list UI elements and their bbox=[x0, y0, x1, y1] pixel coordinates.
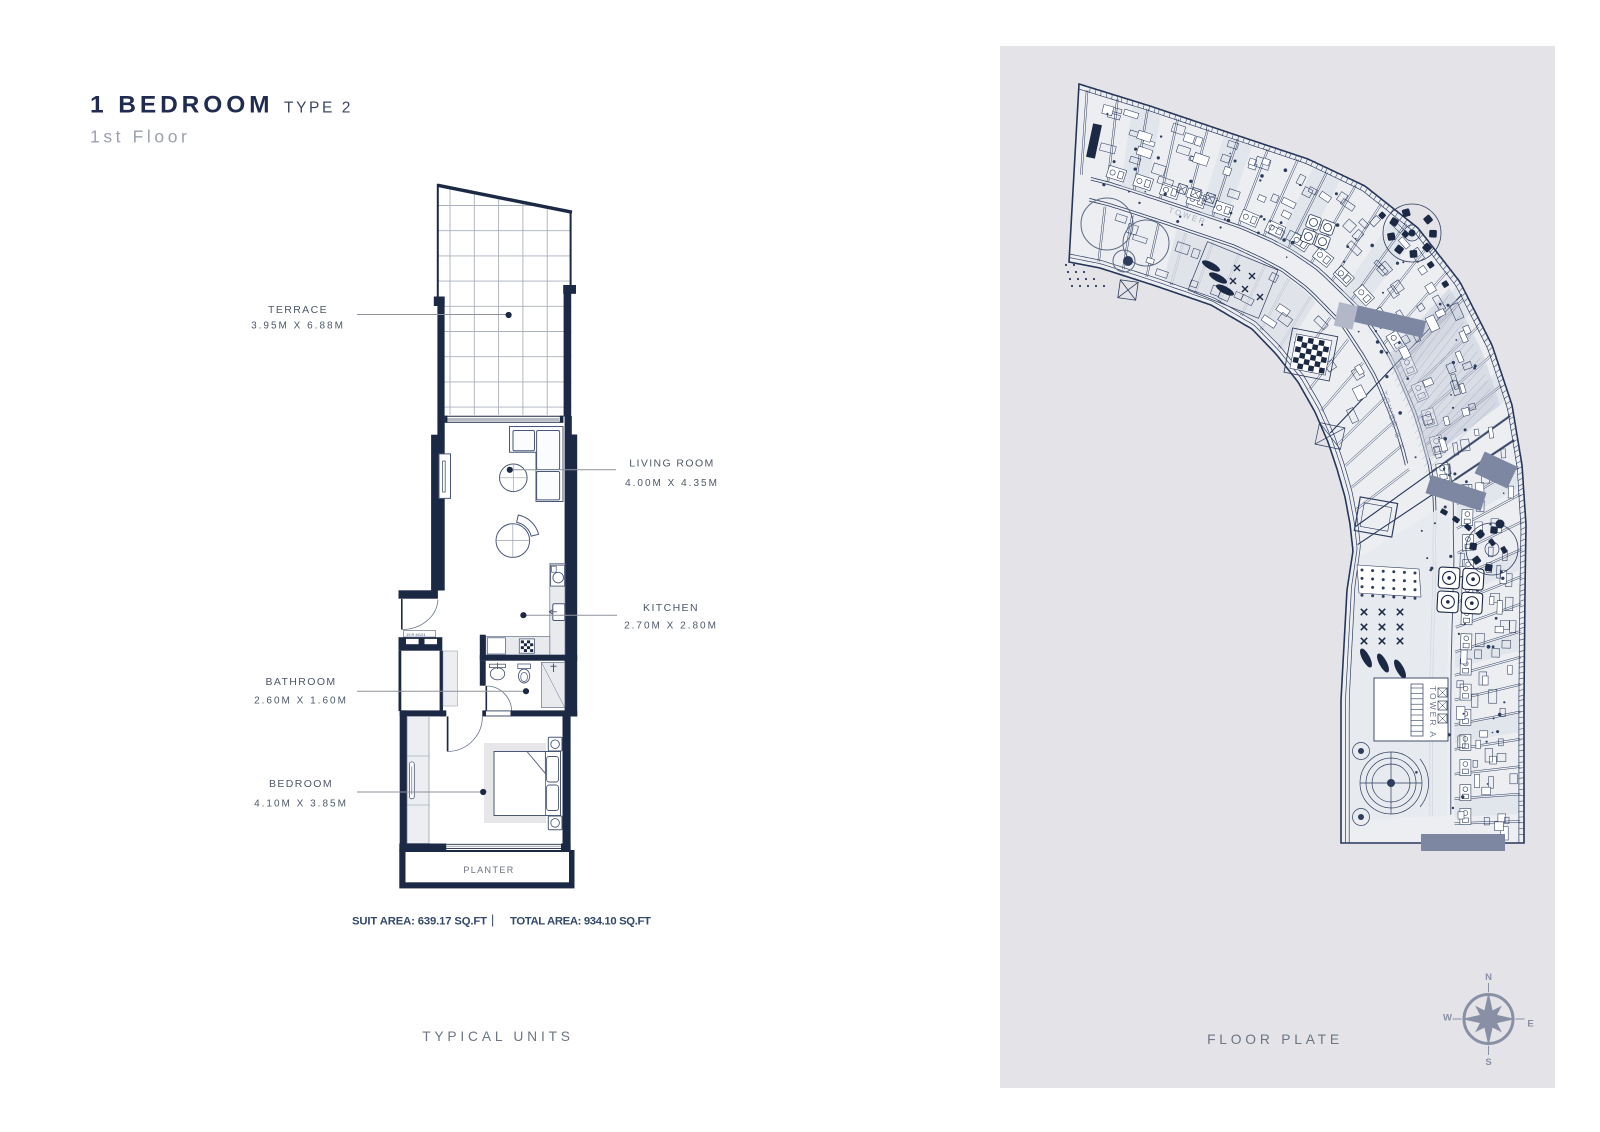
svg-text:PLANTER: PLANTER bbox=[463, 865, 514, 875]
svg-text:3.95M X 6.88M: 3.95M X 6.88M bbox=[251, 321, 345, 332]
svg-text:1st Floor: 1st Floor bbox=[90, 127, 190, 147]
svg-text:E: E bbox=[1527, 1019, 1533, 1030]
svg-text:SUIT AREA: 639.17 SQ.FT: SUIT AREA: 639.17 SQ.FT bbox=[352, 916, 487, 928]
svg-text:FLOOR PLATE: FLOOR PLATE bbox=[1207, 1032, 1343, 1047]
svg-text:W: W bbox=[1443, 1013, 1452, 1024]
svg-text:TERRACE: TERRACE bbox=[268, 304, 328, 316]
svg-text:LIVING ROOM: LIVING ROOM bbox=[629, 458, 714, 470]
svg-text:4.00M X 4.35M: 4.00M X 4.35M bbox=[625, 478, 719, 489]
svg-text:TYPE 2: TYPE 2 bbox=[284, 100, 353, 117]
svg-text:1 BEDROOM: 1 BEDROOM bbox=[90, 92, 273, 119]
svg-text:TOWER A: TOWER A bbox=[1428, 686, 1438, 739]
svg-text:19.R M101: 19.R M101 bbox=[406, 632, 426, 637]
svg-text:2.60M X 1.60M: 2.60M X 1.60M bbox=[254, 696, 348, 707]
svg-text:KITCHEN: KITCHEN bbox=[643, 602, 699, 614]
svg-text:TOTAL AREA: 934.10 SQ.FT: TOTAL AREA: 934.10 SQ.FT bbox=[510, 916, 651, 928]
svg-text:2.70M X 2.80M: 2.70M X 2.80M bbox=[624, 621, 718, 632]
svg-text:TYPICAL UNITS: TYPICAL UNITS bbox=[422, 1029, 574, 1044]
svg-text:|: | bbox=[491, 913, 494, 927]
svg-text:N: N bbox=[1485, 972, 1492, 983]
svg-text:4.10M X 3.85M: 4.10M X 3.85M bbox=[254, 799, 348, 810]
svg-text:BATHROOM: BATHROOM bbox=[265, 676, 336, 688]
svg-text:S: S bbox=[1485, 1057, 1491, 1068]
svg-text:BEDROOM: BEDROOM bbox=[269, 778, 333, 790]
